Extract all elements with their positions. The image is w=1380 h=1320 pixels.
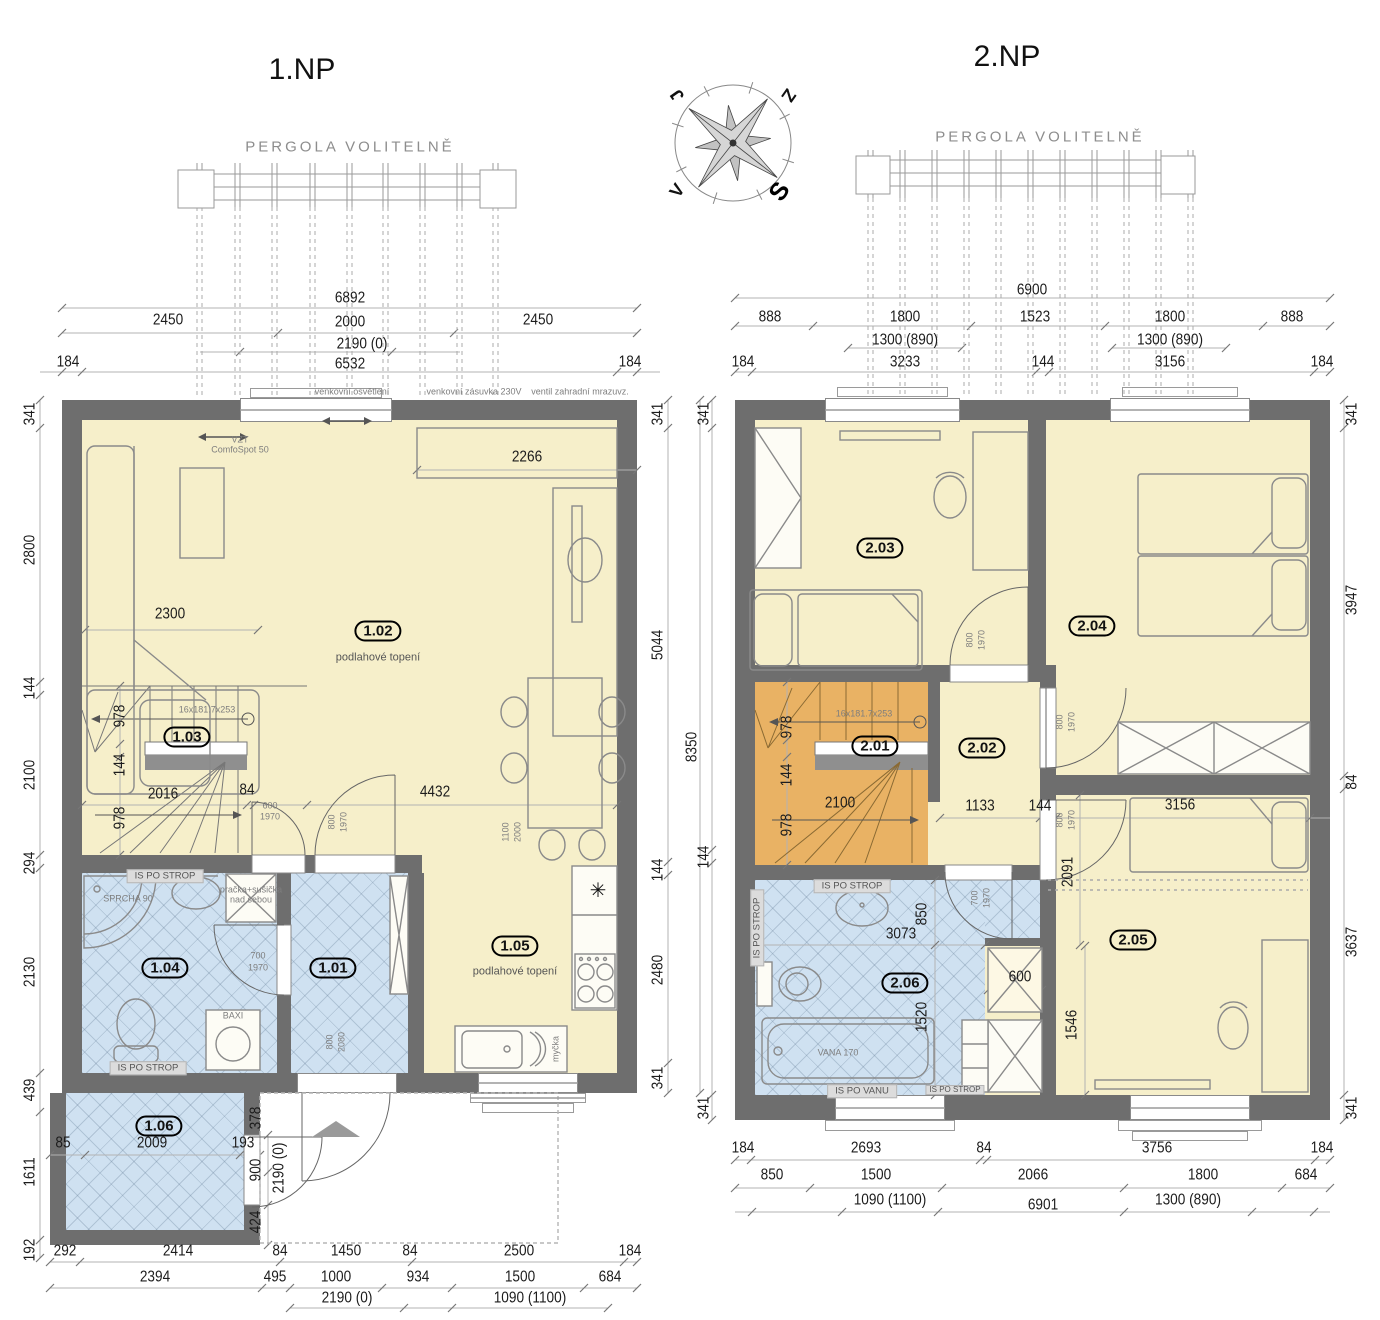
annotation-label: 800 (326, 1034, 335, 1049)
room-number-label: 1.03 (163, 727, 210, 748)
dimension-label: 184 (619, 354, 642, 370)
dimension-label: 2693 (851, 1140, 881, 1156)
dimension-label: 2190 (0) (322, 1290, 373, 1306)
dimension-label: 888 (759, 309, 782, 325)
dimension-label: 341 (650, 1067, 666, 1090)
dimension-label: 850 (761, 1167, 784, 1183)
dimension-label: 2450 (523, 312, 553, 328)
dimension-label: 1300 (890) (1137, 332, 1203, 348)
dimension-label: 2800 (22, 535, 38, 565)
dimension-label: 1800 (1188, 1167, 1218, 1183)
dimension-label: 6892 (335, 290, 365, 306)
dimension-label: 1450 (331, 1243, 361, 1259)
annotation-label: myčka (552, 1036, 561, 1062)
annotation-label: 800 (966, 632, 975, 647)
dimension-label: 2480 (650, 955, 666, 985)
dimension-label: 341 (1344, 403, 1360, 426)
dimension-label: 1800 (1155, 309, 1185, 325)
dimension-label: 2414 (163, 1243, 193, 1259)
room-number-label: 2.02 (958, 738, 1005, 759)
annotation-label: 700 (971, 890, 980, 905)
dimension-label: 2450 (153, 312, 183, 328)
dimension-label: 144 (696, 846, 712, 869)
annotation-label: 800 (1056, 812, 1065, 827)
dimension-label: 978 (112, 807, 128, 830)
annotation-label: SPRCHA 90 (103, 895, 153, 904)
dimension-label: 84 (272, 1243, 287, 1259)
dimension-label: 184 (732, 354, 755, 370)
annotation-label: 1970 (983, 888, 992, 908)
dimension-label: 1546 (1064, 1010, 1080, 1040)
dimension-label: 144 (112, 754, 128, 777)
dimension-label: 294 (22, 852, 38, 875)
dimension-label: 978 (779, 814, 795, 837)
dimension-label: 2066 (1018, 1167, 1048, 1183)
annotation-label: 1970 (1068, 712, 1077, 732)
annotation-label: 700 (250, 952, 265, 961)
dimension-label: 2394 (140, 1269, 170, 1285)
annotation-label: 16x181.7x253 (179, 706, 236, 715)
dimension-label: 1500 (505, 1269, 535, 1285)
dimension-label: 84 (402, 1243, 417, 1259)
dimension-label: 888 (1281, 309, 1304, 325)
annotation-label: pračka+sušička (220, 886, 282, 895)
room-number-label: 1.04 (141, 958, 188, 979)
dimension-label: 934 (407, 1269, 430, 1285)
dimension-label: 84 (239, 782, 254, 798)
dimension-label: 1090 (1100) (854, 1192, 927, 1208)
dimension-label: 144 (650, 859, 666, 882)
dimension-label: 2130 (22, 957, 38, 987)
dimension-label: 144 (22, 677, 38, 700)
room-note-label: podlahové topení (336, 653, 420, 664)
annotation-label: 16x181.7x253 (836, 710, 893, 719)
dimension-label: 341 (696, 1097, 712, 1120)
dimension-label: 3156 (1165, 797, 1195, 813)
dimension-label: 978 (779, 716, 795, 739)
annotation-label: 2080 (338, 1032, 347, 1052)
dimension-label: 5044 (650, 630, 666, 660)
dimension-label: 495 (264, 1269, 287, 1285)
dimension-label: 2016 (148, 786, 178, 802)
ceiling-band-label: IS PO STROP (127, 869, 204, 883)
room-number-label: 2.03 (856, 538, 903, 559)
dimension-label: 8350 (684, 732, 700, 762)
dimension-label: 184 (1311, 1140, 1334, 1156)
dimension-label: 341 (650, 403, 666, 426)
dimension-label: 1523 (1020, 309, 1050, 325)
dimension-label: 2266 (512, 449, 542, 465)
dimension-label: 84 (1344, 774, 1360, 789)
annotation-label: VZT (232, 436, 249, 445)
annotation-label: 1970 (1068, 810, 1077, 830)
dimension-label: 144 (1032, 354, 1055, 370)
dimension-label: 424 (248, 1211, 264, 1234)
room-number-label: 2.05 (1109, 930, 1156, 951)
dimension-label: 292 (54, 1243, 77, 1259)
annotation-label: VANA 170 (818, 1049, 859, 1058)
annotation-label: 1970 (340, 812, 349, 832)
dimension-label: 6901 (1028, 1197, 1058, 1213)
dimension-label: 1300 (890) (1155, 1192, 1221, 1208)
dimension-label: 439 (22, 1079, 38, 1102)
dimension-label: 85 (55, 1135, 70, 1151)
dimension-label: 378 (248, 1107, 264, 1130)
dimension-label: 850 (914, 903, 930, 926)
dimension-label: 1500 (861, 1167, 891, 1183)
dimension-label: 144 (1029, 798, 1052, 814)
annotation-label: 800 (328, 814, 337, 829)
annotation-label: ventil zahradní mrazuvz. (531, 388, 629, 397)
annotation-label: 600 (262, 802, 277, 811)
annotation-label: 1970 (248, 964, 268, 973)
dimension-label: 1800 (890, 309, 920, 325)
dimension-label: 184 (57, 354, 80, 370)
dimension-label: 84 (976, 1140, 991, 1156)
dimension-label: 900 (248, 1159, 264, 1182)
dimension-label: 2000 (335, 314, 365, 330)
dimension-label: 2100 (825, 795, 855, 811)
dimension-label: 1611 (22, 1157, 38, 1186)
annotation-label: 2000 (514, 822, 523, 842)
dimension-label: 1133 (965, 798, 994, 814)
dimension-label: 3233 (890, 354, 920, 370)
annotation-label: venkovní zásuvka 230V (426, 388, 521, 397)
annotation-label: 1970 (978, 630, 987, 650)
annotation-label: nad sebou (230, 896, 272, 905)
dimension-label: 1300 (890) (872, 332, 938, 348)
dimension-label: 2300 (155, 606, 185, 622)
dimension-label: 192 (22, 1239, 38, 1262)
dimension-label: 978 (112, 705, 128, 728)
dimension-label: 341 (1344, 1097, 1360, 1120)
dimension-label: 1090 (1100) (494, 1290, 567, 1306)
annotation-label: 1100 (502, 822, 511, 841)
room-number-label: 2.01 (851, 736, 898, 757)
dimension-label: 184 (732, 1140, 755, 1156)
room-note-label: podlahové topení (473, 967, 557, 978)
room-number-label: 2.06 (881, 973, 928, 994)
dimension-label: 2009 (137, 1135, 167, 1151)
annotation-label: venkovní osvětlení (315, 388, 390, 397)
ceiling-band-label: IS PO STROP (110, 1061, 187, 1075)
annotation-label: 800 (1056, 714, 1065, 729)
dimension-label: 3756 (1142, 1140, 1172, 1156)
room-number-label: 1.05 (491, 936, 538, 957)
dimension-label: 144 (779, 764, 795, 787)
dimension-label: 6532 (335, 356, 365, 372)
dimension-label: 193 (232, 1135, 255, 1151)
dimension-label: 2100 (22, 760, 38, 790)
room-number-label: 1.02 (354, 621, 401, 642)
dimension-label: 3947 (1344, 585, 1360, 615)
dimension-label: 341 (696, 403, 712, 426)
dimension-label: 6900 (1017, 282, 1047, 298)
dimension-label: 684 (599, 1269, 622, 1285)
dimension-label: 1520 (914, 1002, 930, 1032)
fridge-freezer-icon: ✳ (590, 881, 607, 901)
annotation-label: BAXI (223, 1012, 244, 1021)
dimension-label: 600 (1009, 969, 1032, 985)
dimension-label: 2500 (504, 1243, 534, 1259)
ceiling-band-label: IS PO VANU (827, 1084, 897, 1098)
annotation-label: ComfoSpot 50 (211, 446, 269, 455)
dimension-label: 3156 (1155, 354, 1185, 370)
annotation-layer: 68922450200024502190 (0)1846532184venkov… (0, 0, 1380, 1320)
dimension-label: 684 (1295, 1167, 1318, 1183)
dimension-label: 2190 (0) (271, 1143, 287, 1194)
ceiling-band-label: IS PO STROP (925, 1085, 984, 1095)
dimension-label: 4432 (420, 784, 450, 800)
dimension-label: 3073 (886, 926, 916, 942)
dimension-label: 1000 (321, 1269, 351, 1285)
room-number-label: 1.01 (309, 958, 356, 979)
dimension-label: 341 (22, 403, 38, 426)
dimension-label: 2091 (1060, 857, 1076, 887)
dimension-label: 2190 (0) (337, 336, 388, 352)
dimension-label: 184 (1311, 354, 1334, 370)
dimension-label: 3637 (1344, 927, 1360, 957)
room-number-label: 2.04 (1068, 616, 1115, 637)
annotation-label: 1970 (260, 813, 280, 822)
dimension-label: 184 (619, 1243, 642, 1259)
ceiling-band-label: IS PO STROP (814, 879, 891, 893)
floorplan-sheet: 1.NP 2.NP PERGOLA VOLITELNĚ PERGOLA VOLI… (0, 0, 1380, 1320)
ceiling-band-label: IS PO STROP (750, 890, 764, 967)
